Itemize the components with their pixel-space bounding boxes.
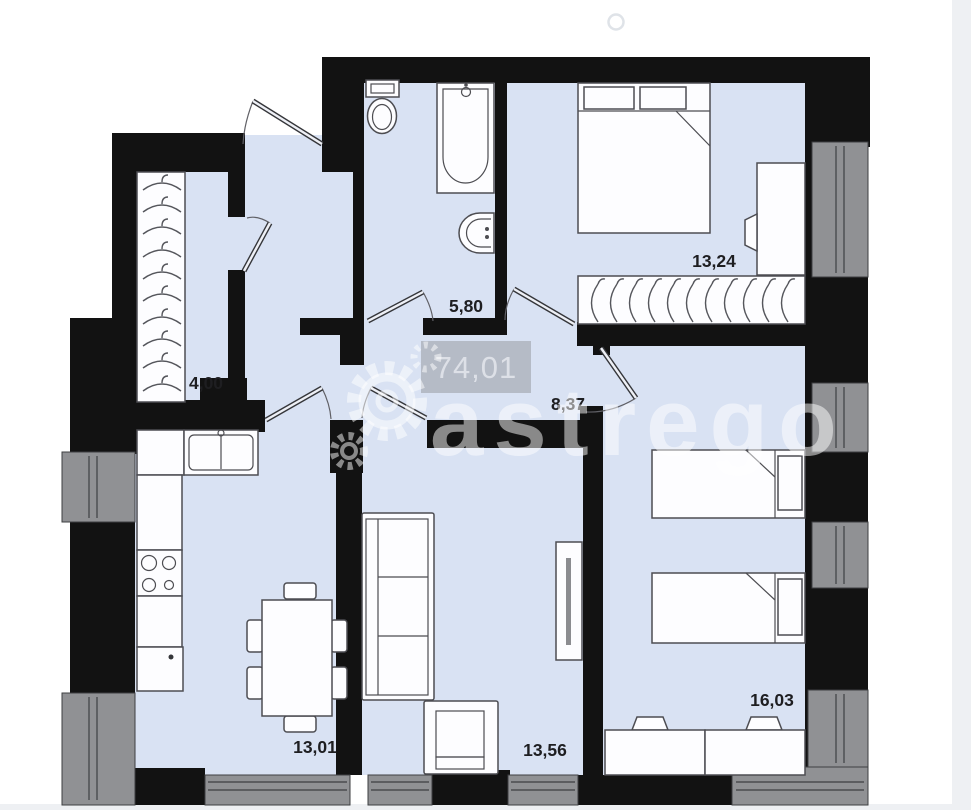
floor-plan-page: 4,00 5,80 13,24 8,37 13,01 13,56 16,03 7… (0, 0, 971, 810)
entrance-opening (245, 135, 322, 173)
kitchen-counter-corner (137, 430, 184, 475)
window-kitchen-corner (62, 693, 135, 805)
kitchen-door-opening (265, 404, 330, 432)
armchair (424, 701, 498, 774)
page-edge-band-right (952, 0, 971, 810)
dining-chair (284, 583, 316, 599)
desk-chair (632, 717, 668, 730)
window-kitchen-left (62, 452, 135, 522)
bathroom-sink (459, 213, 494, 253)
area-label-wardrobe-hall: 4,00 (189, 373, 223, 393)
desk-chair (745, 214, 757, 251)
wardrobe-bedroom-1 (578, 276, 805, 324)
window-living-bottom-left (368, 775, 432, 805)
area-label-bedroom-1: 13,24 (692, 251, 736, 271)
dining-chair (331, 620, 347, 652)
double-bed (578, 83, 710, 233)
window-kitchen-bottom (205, 775, 350, 805)
area-label-bathroom: 5,80 (449, 296, 483, 316)
kitchen-counter-lower (137, 596, 182, 647)
hall-wardrobe-rack (137, 172, 185, 402)
single-bed-2 (652, 573, 805, 643)
window-living-bottom-right (508, 775, 578, 805)
dining-table (247, 583, 347, 732)
floor-plan: 4,00 5,80 13,24 8,37 13,01 13,56 16,03 7… (0, 0, 971, 810)
window-bedroom-1-right (812, 142, 868, 277)
kitchen-sink (184, 430, 258, 475)
area-label-living-room: 13,56 (523, 740, 567, 760)
dining-chair (331, 667, 347, 699)
watermark-fragment-circle (609, 15, 624, 30)
window-bedroom-2-right-lower (808, 690, 868, 767)
dining-chair (247, 667, 263, 699)
stove (137, 550, 182, 596)
watermark-text: astrego (430, 369, 847, 476)
area-label-kitchen-dining: 13,01 (293, 737, 337, 757)
area-label-bedroom-2: 16,03 (750, 690, 794, 710)
dining-chair (247, 620, 263, 652)
kitchen-cabinet (137, 647, 183, 691)
toilet (366, 80, 399, 134)
window-bedroom-2-right-middle (812, 522, 868, 588)
wardrobe-door-opening (228, 215, 245, 272)
bathtub (437, 83, 494, 193)
kitchen-counter (137, 475, 182, 550)
tv-cabinet (556, 542, 582, 660)
desk-chair (746, 717, 782, 730)
sofa (362, 513, 434, 700)
dining-chair (284, 716, 316, 732)
